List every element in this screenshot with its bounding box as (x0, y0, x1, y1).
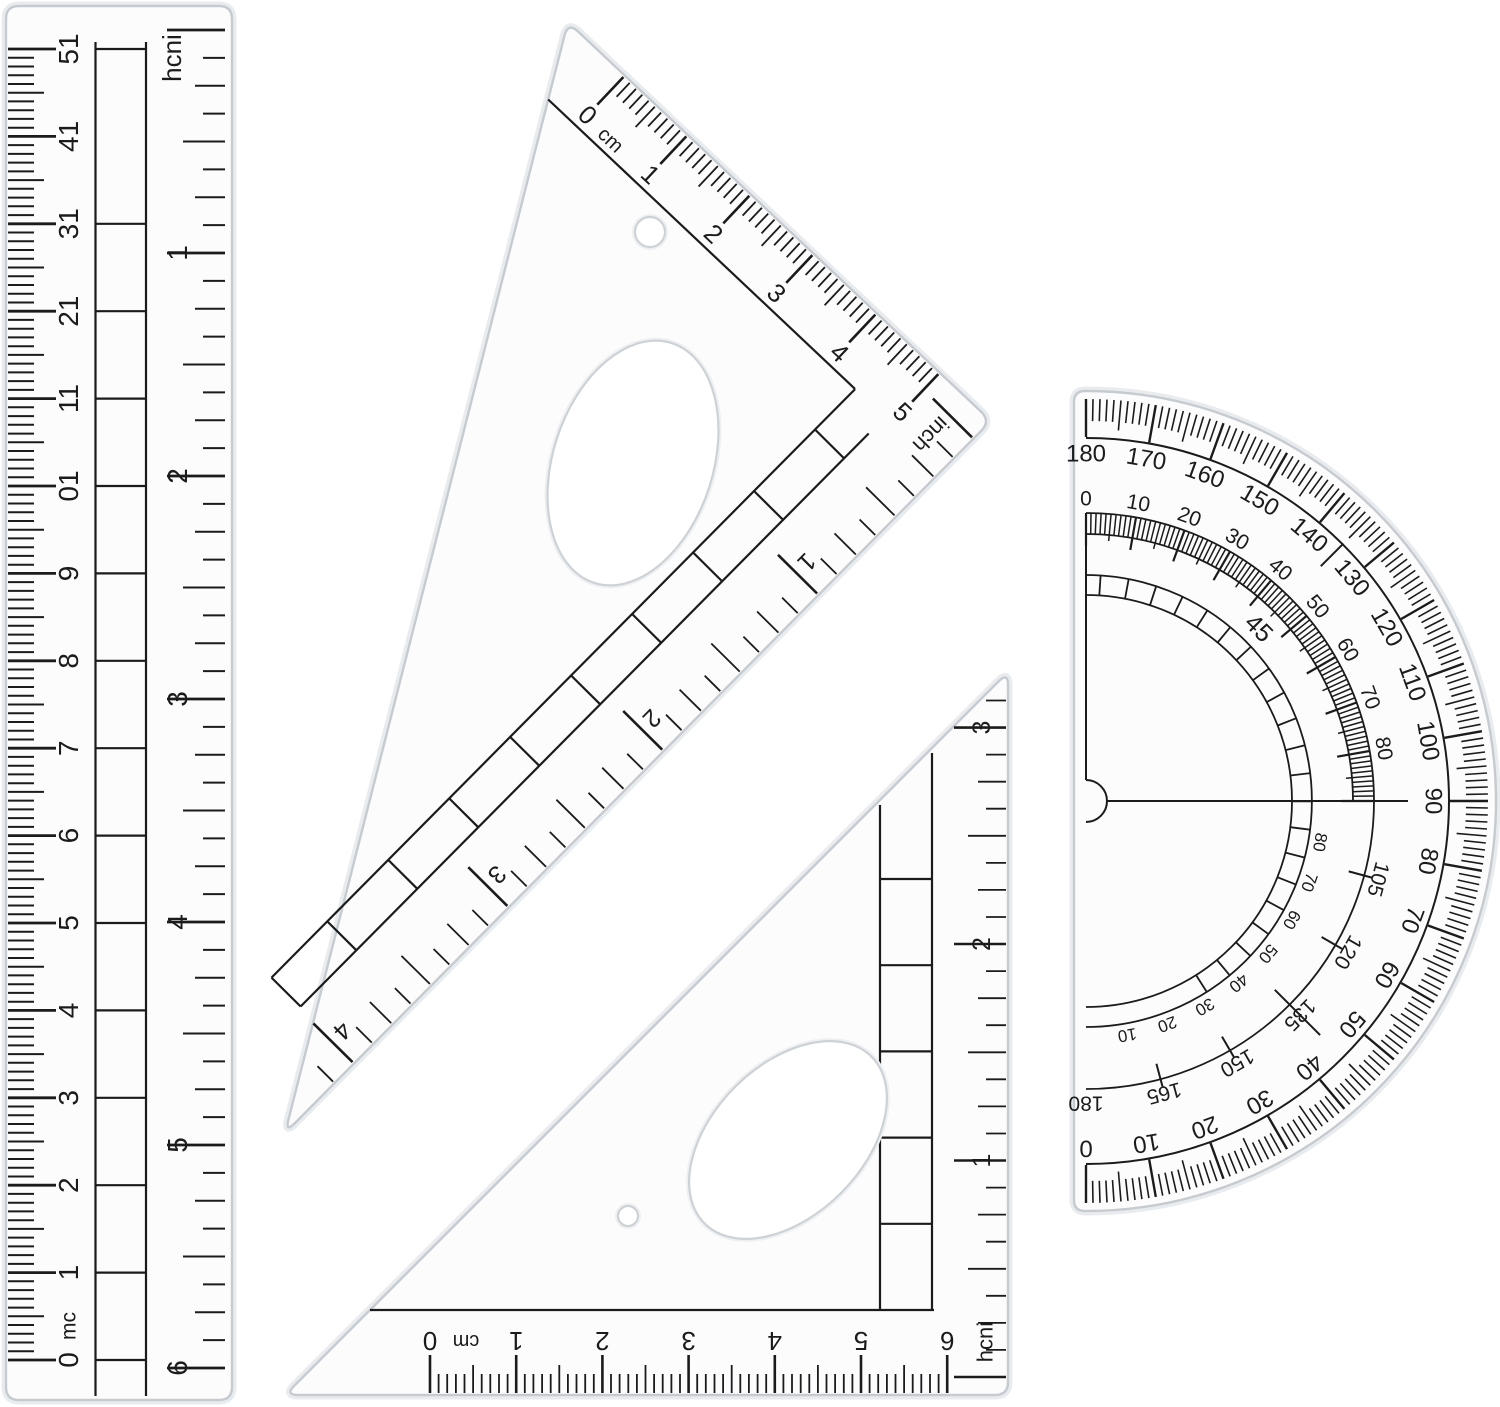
pin-hole (635, 217, 665, 247)
cm-label: 6 (53, 828, 84, 844)
cm-label: 1 (509, 1326, 523, 1356)
degree-label: 10 (1125, 490, 1152, 517)
cm-label: 7 (53, 740, 84, 756)
product-photo-geometry-set: 0mc123456789011121314151123456hcni 0cm12… (0, 0, 1500, 1407)
geometry-set-scene: 0mc123456789011121314151123456hcni 0cm12… (0, 0, 1500, 1407)
cm-label: 01 (53, 470, 84, 501)
degree-label: 80 (1309, 831, 1331, 853)
degree-label: 10 (1131, 1127, 1162, 1158)
ruler-body (6, 6, 232, 1400)
inch-label: 1 (162, 245, 193, 261)
degree-label: 0 (1079, 1135, 1092, 1162)
inch-label: 4 (162, 914, 193, 930)
degree-tick (1106, 1181, 1107, 1203)
degree-tick (1466, 821, 1488, 822)
inch-label: 2 (968, 937, 996, 951)
cm-label: 1 (53, 1265, 84, 1281)
degree-label: 0 (1080, 487, 1092, 510)
degree-label: 10 (1116, 1024, 1138, 1046)
degree-label: 80 (1412, 846, 1443, 877)
inch-label: 2 (162, 468, 193, 484)
degree-tick (1466, 780, 1488, 781)
degree-label: 80 (1370, 735, 1397, 762)
cm-label: 3 (681, 1326, 695, 1356)
ruler: 0mc123456789011121314151123456hcni (6, 6, 232, 1400)
degree-label: 180 (1068, 1092, 1103, 1115)
cm-label: 2 (53, 1177, 84, 1193)
degree-tick (1353, 791, 1374, 792)
inch-unit-label: hcni (157, 34, 187, 82)
inch-unit-label: hcni (973, 1322, 998, 1362)
cm-label: 11 (53, 384, 84, 413)
cm-label: 5 (854, 1326, 868, 1356)
cm-label: 0 (423, 1326, 437, 1356)
inch-label: 1 (968, 1154, 996, 1168)
degree-tick (1466, 787, 1488, 788)
degree-tick (1466, 814, 1488, 815)
cm-unit-label: mc (57, 1312, 80, 1340)
cm-label: 9 (53, 566, 84, 582)
degree-label: 180 (1066, 440, 1106, 467)
cm-label: 31 (53, 208, 84, 239)
cm-label: 21 (53, 296, 84, 327)
inch-label: 3 (162, 691, 193, 707)
cm-label: 5 (53, 915, 84, 931)
cm-label: 4 (53, 1003, 84, 1019)
degree-tick (1095, 513, 1096, 534)
degree-tick (1099, 1181, 1100, 1203)
pin-hole (618, 1206, 638, 1226)
cm-label: 8 (53, 653, 84, 669)
cm-label: 4 (768, 1326, 782, 1356)
degree-label: 90 (1420, 788, 1447, 815)
inch-label: 3 (968, 721, 996, 735)
cm-label: 3 (53, 1090, 84, 1106)
cm-label: 0 (53, 1352, 84, 1368)
inch-label: 5 (162, 1137, 193, 1153)
cm-label: 41 (53, 121, 84, 152)
degree-tick (1099, 399, 1100, 421)
cm-unit-label: cm (453, 1330, 480, 1352)
cm-label: 51 (53, 33, 84, 64)
degree-tick (1106, 400, 1107, 422)
cm-label: 6 (940, 1326, 954, 1356)
cm-label: 2 (595, 1326, 609, 1356)
protractor: 1801701601501401301201101009080706050403… (1066, 391, 1496, 1211)
inch-label: 6 (162, 1360, 193, 1376)
ladder-rung (272, 978, 301, 1007)
